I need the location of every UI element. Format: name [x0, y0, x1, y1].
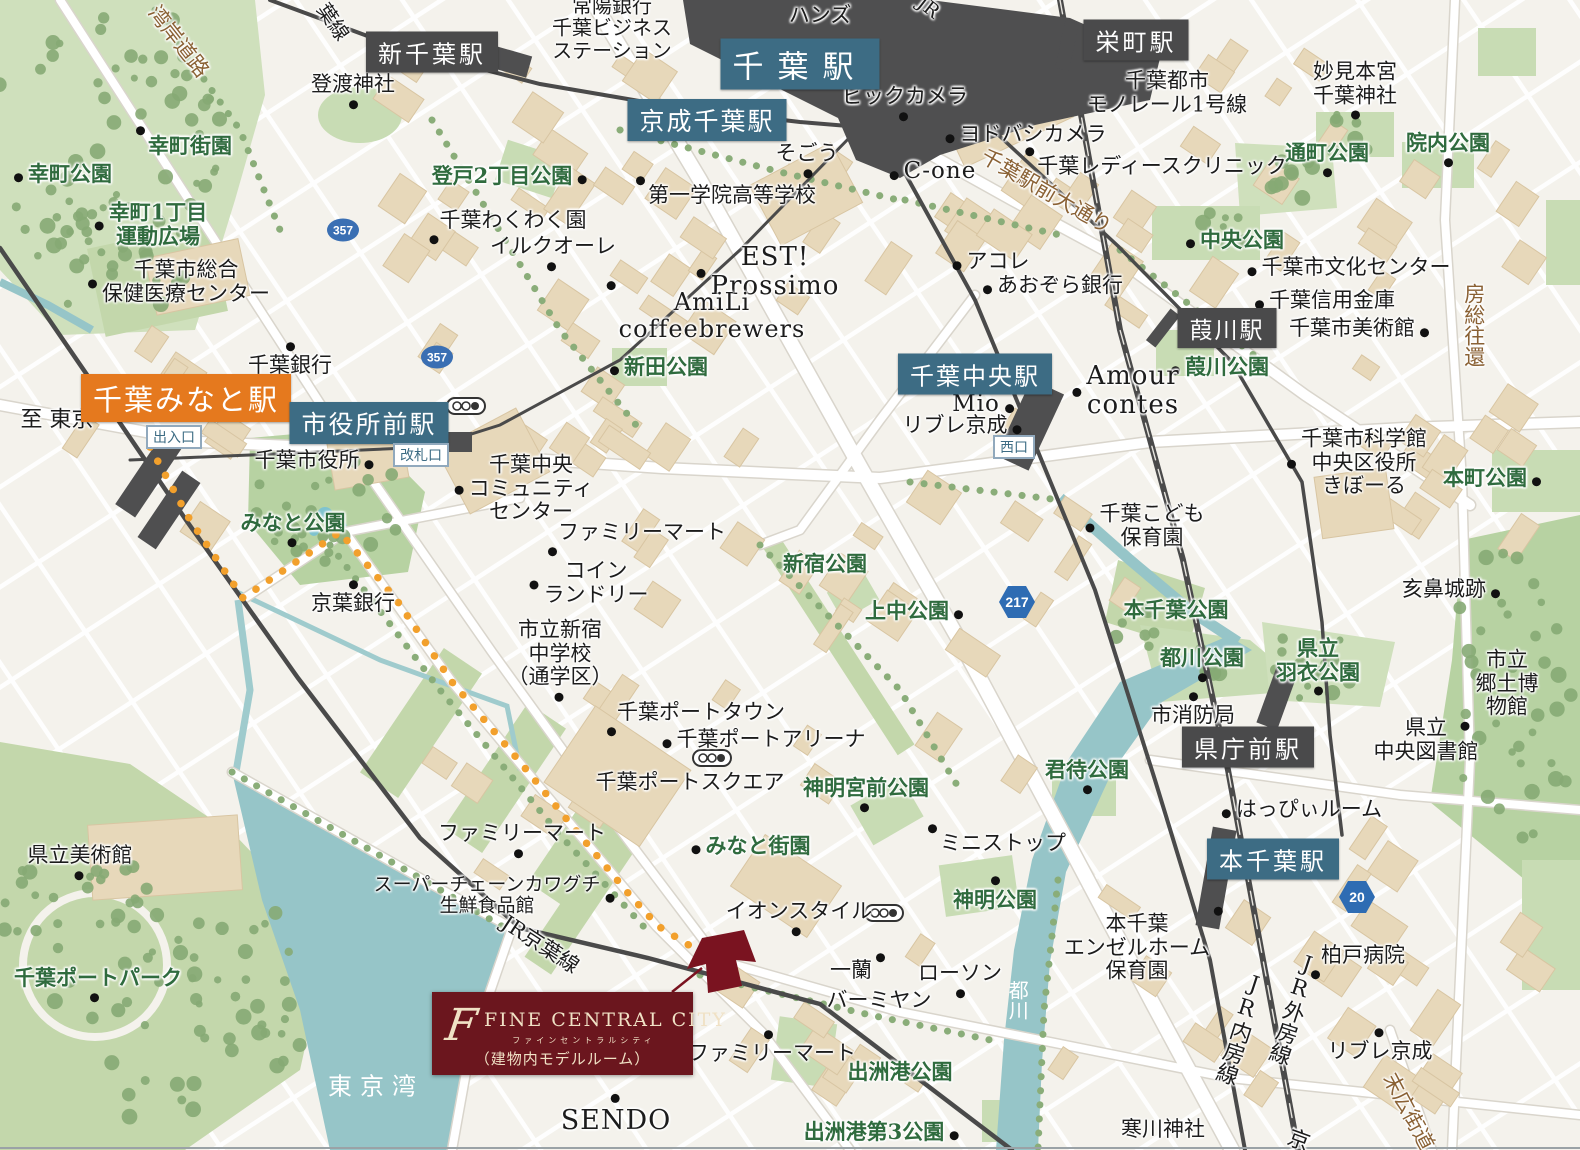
route-shield: 357: [421, 346, 453, 369]
park-label: 新宿公園: [783, 552, 867, 576]
poi-label: リブレ京成: [1328, 1040, 1433, 1064]
poi-label: リブレ京成: [903, 414, 1008, 438]
poi-label: 寒川神社: [1121, 1118, 1205, 1142]
poi-label: 千葉市総合 保健医療センター: [102, 258, 270, 305]
poi-dot-icon: [956, 989, 965, 998]
poi-label: ローソン: [918, 962, 1002, 986]
poi-dot-icon: [1025, 147, 1034, 156]
poi-dot-icon: [555, 692, 564, 701]
park-label: 通町公園: [1285, 141, 1369, 165]
poi-label: アコレ: [967, 250, 1030, 274]
poi-label: 千葉中央 コミュニティ センター: [469, 454, 594, 525]
poi-label: 市消防局: [1151, 704, 1235, 728]
poi-dot-icon: [1189, 692, 1198, 701]
poi-dot-icon: [991, 876, 1000, 885]
park-label: 千葉ポートパーク: [14, 966, 182, 990]
poi-label: 京葉銀行: [311, 592, 395, 616]
poi-dot-icon: [1323, 168, 1332, 177]
poi-label: ハンズ: [789, 4, 852, 28]
poi-label: 千葉ポートスクエア: [596, 771, 785, 795]
station-badge: 栄町駅: [1084, 20, 1189, 61]
poi-label: はっぴぃルーム: [1236, 798, 1382, 822]
poi-label: 千葉市文化センター: [1262, 256, 1451, 280]
poi-dot-icon: [1532, 477, 1541, 486]
poi-dot-icon: [860, 803, 869, 812]
poi-dot-icon: [949, 1131, 958, 1140]
poi-dot-icon: [288, 538, 297, 547]
poi-label: ヨドバシカメラ: [960, 123, 1107, 147]
poi-label: バーミヤン: [827, 989, 932, 1013]
poi-dot-icon: [792, 927, 801, 936]
poi-dot-icon: [983, 285, 992, 294]
poi-dot-icon: [1186, 239, 1195, 248]
poi-label: 亥鼻城跡: [1402, 578, 1486, 602]
poi-dot-icon: [607, 281, 616, 290]
brand-mark-icon: F: [443, 1004, 480, 1048]
poi-dot-icon: [899, 112, 908, 121]
poi-label: 千葉ポートタウン: [617, 701, 785, 725]
poi-label: AmiLi coffeebrewers: [619, 289, 806, 343]
poi-label: 妙見本宮 千葉神社: [1313, 60, 1397, 107]
poi-dot-icon: [1491, 589, 1500, 598]
station-gate-box: 改札口: [393, 443, 449, 467]
poi-label: 県立美術館: [28, 844, 133, 868]
poi-label: 第一学院高等学校: [648, 184, 816, 208]
park-label: 本町公園: [1443, 466, 1527, 490]
poi-dot-icon: [663, 739, 672, 748]
poi-dot-icon: [547, 262, 556, 271]
poi-label: コイン ランドリー: [544, 559, 649, 606]
park-label: 新田公園: [624, 355, 708, 379]
station-gate-box: 出入口: [146, 425, 202, 449]
poi-dot-icon: [954, 610, 963, 619]
poi-dot-icon: [1444, 158, 1453, 167]
park-label: 幸町公園: [28, 162, 112, 186]
station-badge: 県庁前駅: [1182, 727, 1314, 768]
poi-label: ファミリーマート: [688, 1042, 856, 1066]
poi-label: 千葉市役所: [255, 449, 360, 473]
park-label: 君待公園: [1045, 758, 1129, 782]
park-label: 都川公園: [1160, 646, 1244, 670]
brand-name: FINE CENTRAL CITY: [484, 1009, 684, 1031]
station-badge: 千葉中央駅: [898, 354, 1052, 395]
poi-dot-icon: [946, 134, 955, 143]
poi-label: あおぞら銀行: [997, 274, 1123, 298]
poi-label: 柏戸病院: [1321, 944, 1405, 968]
poi-label: 千葉信用金庫: [1269, 289, 1395, 313]
poi-label: 千葉こども 保育園: [1100, 502, 1205, 549]
poi-dot-icon: [928, 824, 937, 833]
park-label: 中央公園: [1200, 228, 1284, 252]
brand-logo-box: F FINE CENTRAL CITY ファインセントラルシティ （建物内モデル…: [432, 992, 693, 1075]
poi-dot-icon: [349, 580, 358, 589]
poi-dot-icon: [548, 547, 557, 556]
water-name-label: 都川: [1006, 980, 1028, 1020]
poi-label: C-one: [904, 159, 977, 185]
poi-dot-icon: [636, 176, 645, 185]
poi-label: 県立 中央図書館: [1374, 716, 1479, 763]
park-label: 上中公園: [865, 599, 949, 623]
poi-dot-icon: [605, 894, 614, 903]
poi-label: スーパーチェーンカワグチ 生鮮食品館: [374, 875, 601, 918]
poi-label: 本千葉 エンゼルホーム 保育園: [1064, 913, 1210, 984]
park-label: 出洲港第3公園: [804, 1120, 945, 1144]
route-shield: 357: [327, 219, 359, 242]
poi-dot-icon: [953, 261, 962, 270]
poi-label: 千葉ポートアリーナ: [677, 728, 866, 752]
park-label: 神明公園: [953, 888, 1037, 912]
park-label: 幸町1丁目 運動広場: [109, 200, 208, 247]
poi-dot-icon: [1314, 687, 1323, 696]
park-label: 院内公園: [1406, 131, 1490, 155]
poi-dot-icon: [1198, 673, 1207, 682]
poi-dot-icon: [1222, 809, 1231, 818]
park-label: みなと公園: [241, 511, 346, 535]
poi-label: Amour contes: [1086, 362, 1179, 420]
station-badge: 千葉駅: [721, 39, 880, 90]
poi-dot-icon: [804, 169, 813, 178]
poi-label: 市立新宿 中学校 （通学区）: [508, 619, 613, 690]
poi-dot-icon: [349, 100, 358, 109]
poi-dot-icon: [607, 727, 616, 736]
poi-label: ファミリーマート: [438, 822, 606, 846]
park-label: みなと街園: [706, 834, 811, 858]
station-badge: 京成千葉駅: [627, 99, 786, 141]
poi-dot-icon: [1013, 425, 1022, 434]
poi-label: ミニストップ: [940, 832, 1066, 856]
map-canvas: 湾岸道路葉線JRハンズ常陽銀行 千葉ビジネス ステーション登渡神社幸町街園幸町公…: [0, 0, 1580, 1150]
poi-dot-icon: [430, 235, 439, 244]
station-badge: 千葉みなと駅: [81, 374, 291, 422]
poi-label: 千葉都市 モノレール1号線: [1087, 69, 1247, 116]
poi-dot-icon: [286, 342, 295, 351]
station-gate-box: 西口: [993, 435, 1035, 459]
poi-label: そごう: [776, 142, 839, 166]
poi-dot-icon: [1287, 459, 1296, 468]
park-label: 幸町街園: [148, 134, 232, 158]
park-label: 県立 羽衣公園: [1276, 636, 1360, 683]
poi-dot-icon: [514, 849, 523, 858]
park-label: 葭川公園: [1185, 355, 1269, 379]
poi-dot-icon: [610, 1094, 619, 1103]
poi-dot-icon: [136, 126, 145, 135]
poi-label: 市立 郷土博物館: [1471, 649, 1544, 720]
poi-label: イオンスタイル: [726, 900, 873, 924]
park-label: 登戸2丁目公園: [432, 164, 573, 188]
brand-furigana: ファインセントラルシティ: [484, 1035, 684, 1046]
poi-dot-icon: [610, 366, 619, 375]
poi-label: 登渡神社: [311, 73, 395, 97]
station-badge: 市役所前駅: [289, 402, 448, 444]
poi-dot-icon: [876, 953, 885, 962]
poi-dot-icon: [1248, 267, 1257, 276]
station-badge: 新千葉駅: [366, 32, 498, 73]
poi-dot-icon: [1420, 328, 1429, 337]
poi-dot-icon: [1005, 404, 1014, 413]
station-badge: 本千葉駅: [1207, 839, 1339, 880]
poi-dot-icon: [1351, 111, 1360, 120]
poi-dot-icon: [365, 460, 374, 469]
poi-dot-icon: [1083, 785, 1092, 794]
park-label: 神明宮前公園: [803, 776, 929, 800]
poi-label: 一蘭: [830, 959, 872, 983]
poi-label: 千葉市美術館: [1289, 317, 1415, 341]
poi-label: 千葉レディースクリニック: [1037, 155, 1286, 179]
park-label: 出洲港公園: [848, 1060, 953, 1084]
poi-dot-icon: [455, 485, 464, 494]
park-label: 本千葉公園: [1124, 598, 1229, 622]
poi-label: 常陽銀行 千葉ビジネス ステーション: [552, 0, 672, 62]
station-badge: 葭川駅: [1178, 308, 1277, 348]
poi-label: 千葉市科学館 中央区役所 きぼーる: [1301, 428, 1427, 499]
poi-dot-icon: [14, 173, 23, 182]
water-name-label: 東京湾: [328, 1074, 424, 1101]
poi-dot-icon: [890, 171, 899, 180]
poi-label: SENDO: [561, 1106, 672, 1136]
poi-label: イルクオーレ: [490, 235, 616, 259]
poi-dot-icon: [75, 871, 84, 880]
poi-dot-icon: [692, 845, 701, 854]
poi-dot-icon: [90, 993, 99, 1002]
poi-label: ファミリーマート: [558, 521, 726, 545]
model-room-note: （建物内モデルルーム）: [432, 1048, 693, 1069]
road-name-label: 房総往還: [1461, 283, 1485, 367]
poi-dot-icon: [764, 1030, 773, 1039]
poi-dot-icon: [577, 175, 586, 184]
poi-label: 千葉わくわく園: [440, 209, 587, 233]
